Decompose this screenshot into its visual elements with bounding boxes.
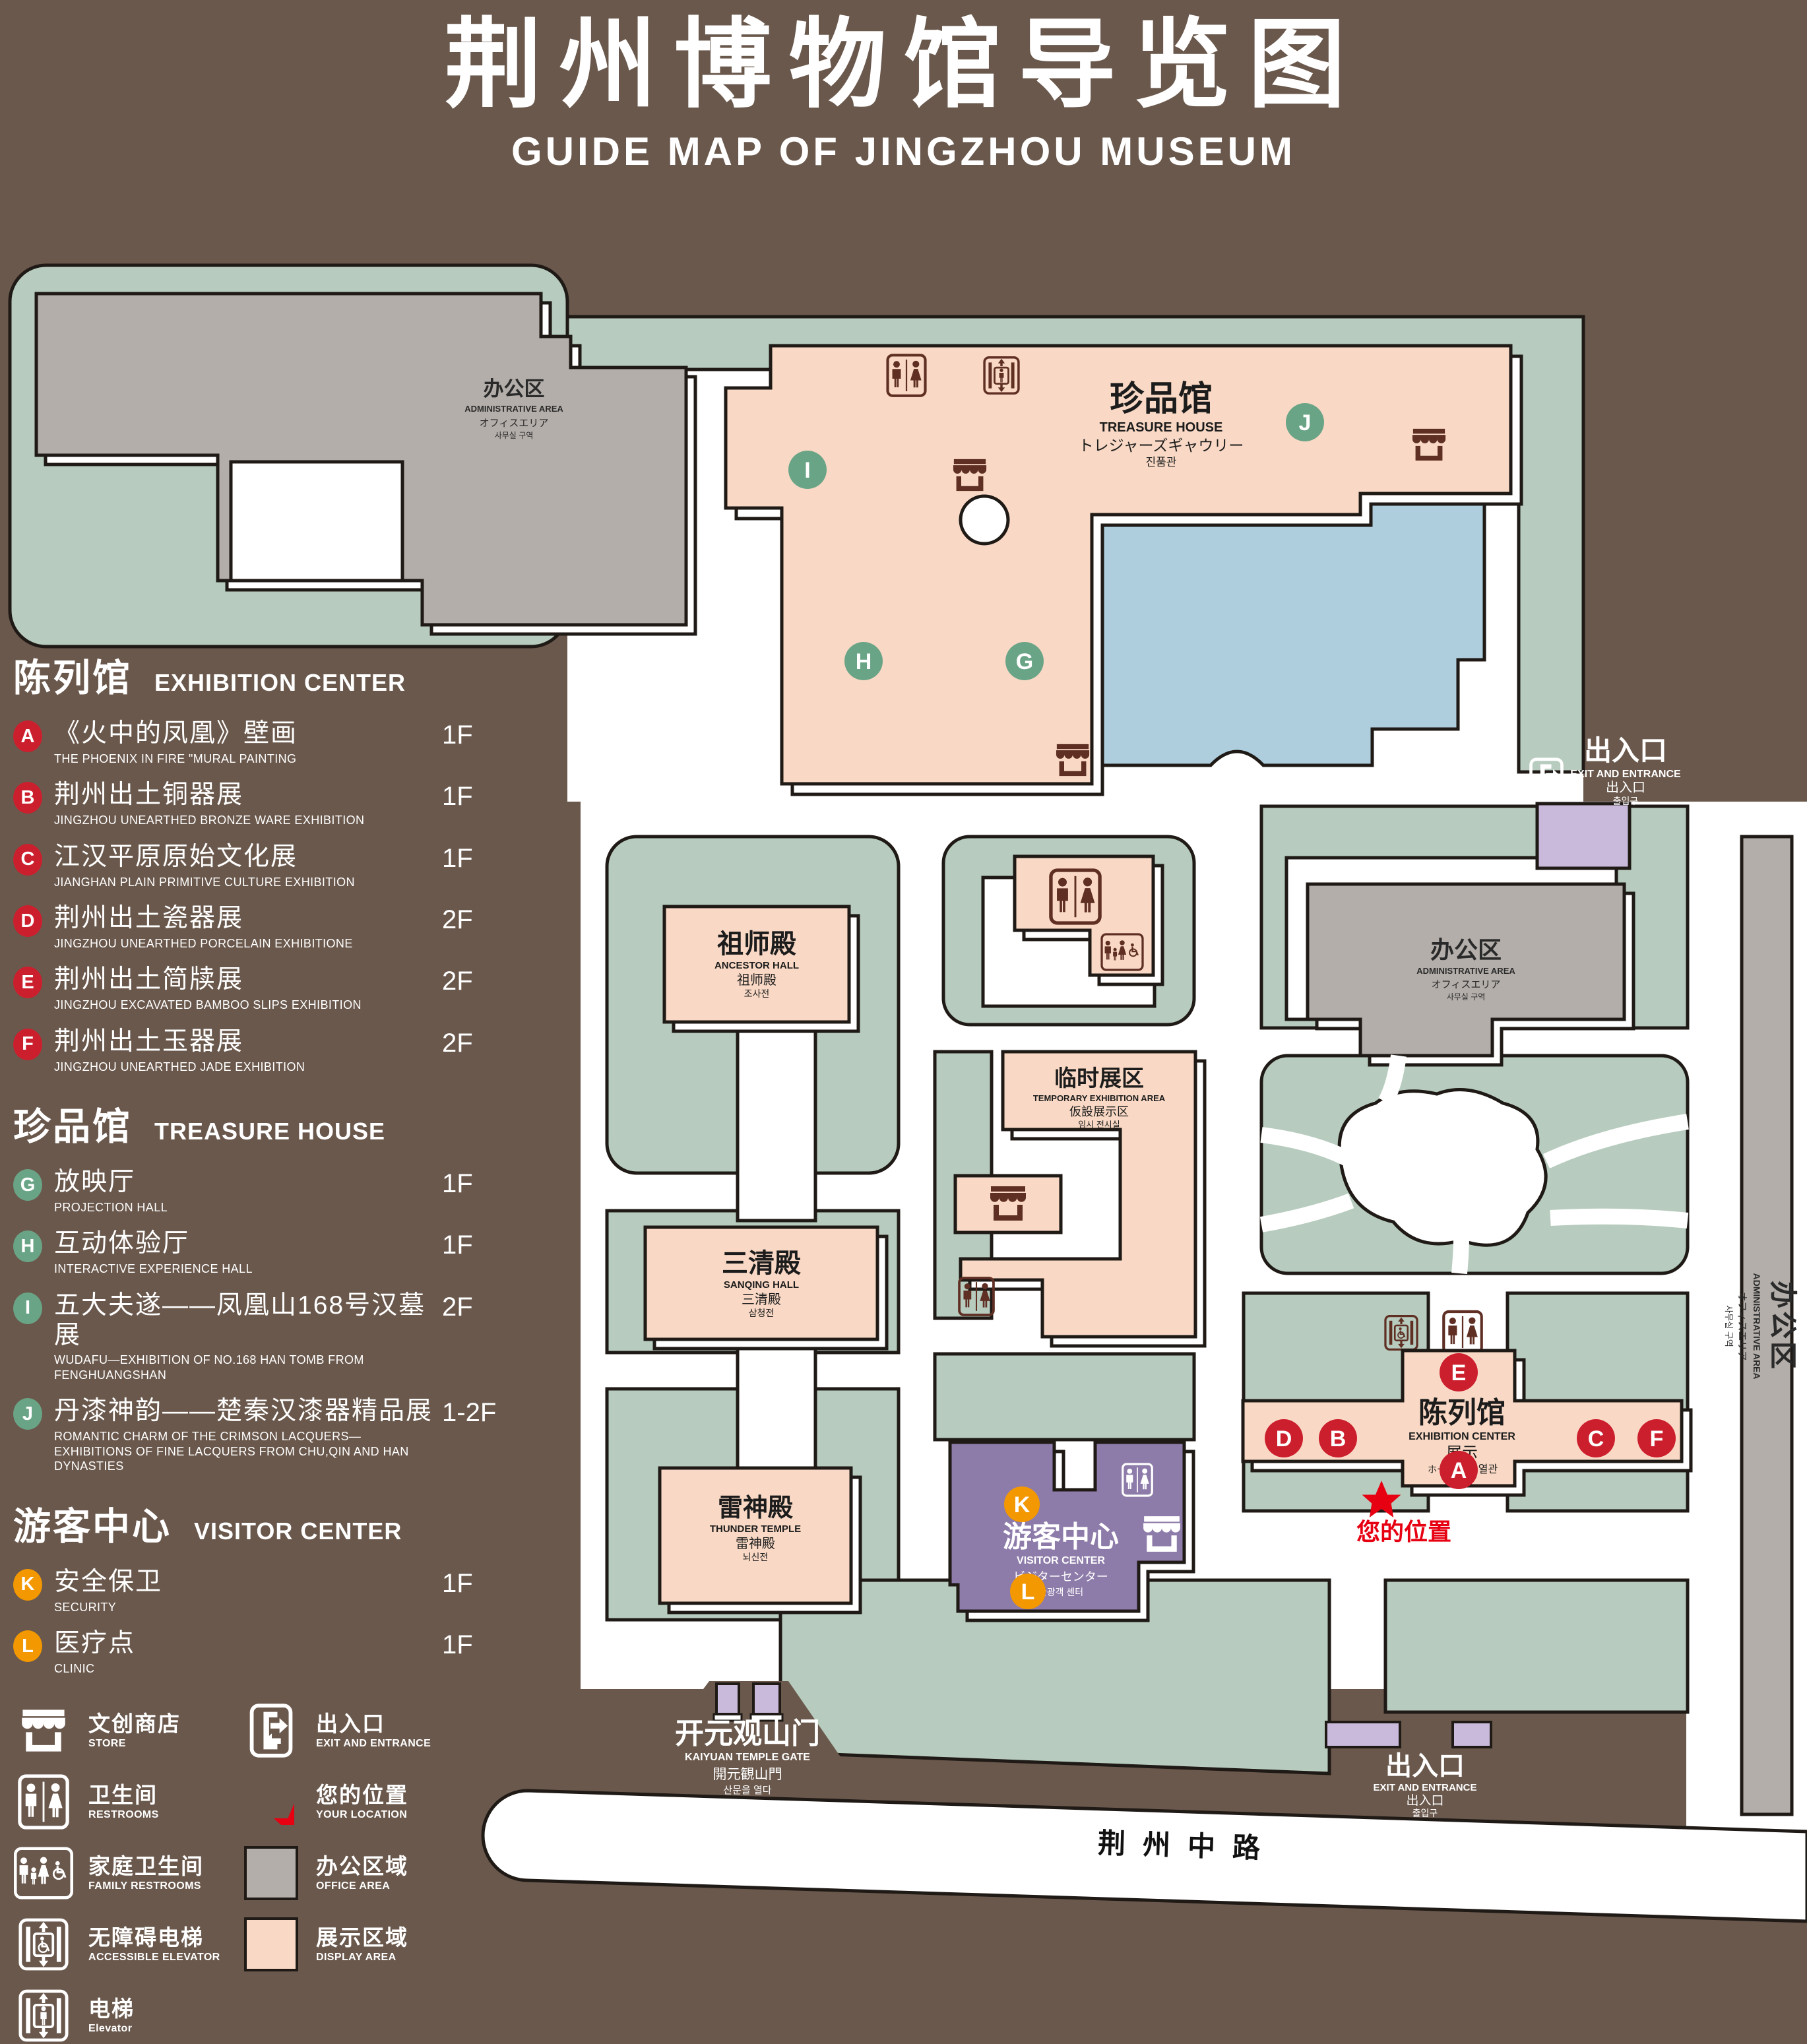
svg-text:임시 전시실: 임시 전시실 (1078, 1120, 1120, 1130)
green-court-visitor (935, 1354, 1194, 1440)
marker-badge-h: H (13, 1230, 42, 1262)
marker-f: F (1637, 1419, 1676, 1457)
marker-badge-c: C (13, 844, 42, 876)
display-area-swatch (244, 1917, 298, 1971)
legend-item-l: L 医疗点 CLINIC 1F (13, 1629, 500, 1676)
floor-label: 2F (442, 1027, 500, 1058)
svg-text:SANQING HALL: SANQING HALL (724, 1279, 799, 1291)
family-restroom-icon (13, 1847, 74, 1900)
section-title-en: EXHIBITION CENTER (154, 669, 406, 697)
svg-text:THUNDER TEMPLE: THUNDER TEMPLE (710, 1523, 801, 1535)
marker-badge-g: G (13, 1169, 42, 1201)
legend-display-area: 展示区域 DISPLAY AREA (241, 1916, 488, 1973)
svg-text:开元观山门: 开元观山门 (675, 1717, 820, 1750)
svg-text:三清殿: 三清殿 (722, 1249, 801, 1278)
gate-block (1453, 1722, 1491, 1747)
restroom-icon (13, 1774, 74, 1830)
legend-item-h: H 互动体验厅 INTERACTIVE EXPERIENCE HALL 1F (13, 1229, 500, 1276)
section-treasure-house: 珍品馆 TREASURE HOUSE (13, 1097, 500, 1151)
road-label: 荆州中路 (1097, 1828, 1277, 1865)
svg-text:祖师殿: 祖师殿 (737, 973, 777, 988)
svg-text:仮設展示区: 仮設展示区 (1069, 1105, 1129, 1118)
marker-b: B (1319, 1419, 1357, 1457)
svg-text:출입구: 출입구 (1412, 1808, 1438, 1818)
svg-text:游客中心: 游客中心 (1003, 1521, 1119, 1553)
svg-text:ANCESTOR HALL: ANCESTOR HALL (714, 960, 799, 971)
elevator-icon (13, 1989, 74, 2042)
legend-your-location: 您的位置 YOUR LOCATION (241, 1773, 488, 1830)
floor-label: 1F (442, 1568, 500, 1599)
svg-text:VISITOR CENTER: VISITOR CENTER (1017, 1555, 1105, 1566)
floor-label: 1F (442, 781, 500, 812)
svg-text:G: G (1016, 649, 1033, 674)
svg-text:办公区: 办公区 (1767, 1281, 1798, 1372)
marker-badge-d: D (13, 905, 42, 937)
svg-text:办公区: 办公区 (484, 377, 545, 400)
legend-restrooms: 卫生间 RESTROOMS (13, 1773, 241, 1830)
treasure-notch (961, 496, 1008, 544)
location-star-icon (241, 1779, 301, 1825)
svg-text:三清殿: 三清殿 (742, 1292, 781, 1307)
svg-text:출입구: 출입구 (1613, 796, 1639, 806)
section-title-en: TREASURE HOUSE (154, 1118, 385, 1145)
guide-map-poster: { "title": {"zh": "荆州博物馆导览图", "en": "GUI… (0, 0, 1807, 1932)
svg-text:I: I (804, 458, 810, 483)
svg-text:祖师殿: 祖师殿 (717, 930, 796, 959)
green-southeast (1385, 1580, 1688, 1712)
svg-text:出入口: 出入口 (1406, 1793, 1443, 1808)
legend-item-j: J 丹漆神韵——楚秦汉漆器精品展 ROMANTIC CHARM OF THE C… (13, 1397, 500, 1473)
section-exhibition-center: 陈列馆 EXHIBITION CENTER (13, 648, 500, 702)
marker-badge-f: F (13, 1029, 42, 1060)
legend-store: 文创商店 STORE (13, 1702, 241, 1759)
svg-text:オフィスエリア: オフィスエリア (480, 418, 549, 429)
svg-text:사무실 구역: 사무실 구역 (1724, 1305, 1734, 1347)
svg-text:雷神殿: 雷神殿 (736, 1536, 775, 1551)
marker-d: D (1265, 1419, 1303, 1457)
svg-text:KAIYUAN TEMPLE GATE: KAIYUAN TEMPLE GATE (685, 1752, 810, 1763)
svg-text:C: C (1588, 1426, 1604, 1452)
svg-text:雷神殿: 雷神殿 (718, 1494, 793, 1522)
accessible-elevator-icon (13, 1918, 74, 1971)
floor-label: 2F (442, 904, 500, 935)
marker-e: E (1440, 1353, 1478, 1391)
svg-text:F: F (1650, 1426, 1664, 1452)
svg-text:ADMINISTRATIVE AREA: ADMINISTRATIVE AREA (464, 404, 563, 414)
svg-text:ADMINISTRATIVE AREA: ADMINISTRATIVE AREA (1416, 966, 1515, 976)
svg-text:사무실 구역: 사무실 구역 (1447, 992, 1486, 1002)
marker-j: J (1286, 403, 1324, 441)
section-visitor-center: 游客中心 VISITOR CENTER (13, 1496, 500, 1550)
marker-l: L (1010, 1574, 1046, 1609)
svg-text:ADMINISTRATIVE AREA: ADMINISTRATIVE AREA (1752, 1273, 1762, 1380)
svg-text:出入口: 出入口 (1584, 735, 1667, 766)
page-title: 荆州博物馆导览图 (0, 12, 1807, 119)
svg-text:산문을 열다: 산문을 열다 (723, 1785, 771, 1796)
building-thunder-temple (660, 1468, 851, 1603)
poster-header: 荆州博物馆导览图 GUIDE MAP OF JINGZHOU MUSEUM (0, 12, 1807, 174)
marker-badge-a: A (13, 720, 42, 752)
svg-text:D: D (1276, 1426, 1292, 1452)
exit-icon (241, 1704, 301, 1758)
floor-label: 2F (442, 1291, 500, 1322)
svg-text:オフィスエリア: オフィスエリア (1736, 1292, 1748, 1361)
svg-text:E: E (1451, 1360, 1467, 1386)
floor-label: 1F (442, 843, 500, 874)
marker-i: I (788, 451, 827, 489)
svg-text:陈列馆: 陈列馆 (1418, 1397, 1506, 1429)
legend-item-k: K 安全保卫 SECURITY 1F (13, 1568, 500, 1614)
elevator-icon (984, 358, 1019, 394)
legend-sidebar: 陈列馆 EXHIBITION CENTER A 《火中的凤凰》壁画 THE PH… (13, 648, 500, 2044)
floor-label: 1F (442, 1229, 500, 1260)
marker-h: H (844, 642, 883, 680)
svg-text:L: L (1021, 1580, 1035, 1605)
section-title-zh: 陈列馆 (13, 648, 132, 702)
label-exit-top: 出入口 EXIT AND ENTRANCE 出入口 출입구 (1570, 735, 1681, 806)
legend-item-i: I 五大夫遂——凤凰山168号汉墓展 WUDAFU—EXHIBITION OF … (13, 1291, 500, 1383)
svg-text:办公区: 办公区 (1430, 936, 1502, 963)
svg-text:開元観山門: 開元観山門 (713, 1767, 782, 1782)
gate-block (1326, 1722, 1400, 1747)
legend-office-area: 办公区域 OFFICE AREA (241, 1845, 488, 1901)
store-icon (13, 1708, 74, 1753)
marker-badge-k: K (13, 1569, 42, 1601)
svg-text:TEMPORARY EXHIBITION AREA: TEMPORARY EXHIBITION AREA (1033, 1093, 1166, 1103)
marker-badge-e: E (13, 967, 42, 998)
section-title-en: VISITOR CENTER (194, 1517, 402, 1545)
svg-text:EXIT AND ENTRANCE: EXIT AND ENTRANCE (1374, 1782, 1477, 1793)
floor-label: 1F (442, 1629, 500, 1660)
legend-item-b: B 荆州出土铜器展 JINGZHOU UNEARTHED BRONZE WARE… (13, 781, 500, 827)
store-kiosk (955, 1176, 1061, 1232)
marker-c: C (1577, 1419, 1615, 1457)
your-location-label: 您的位置 (1356, 1518, 1451, 1545)
marker-g: G (1005, 642, 1044, 680)
marker-badge-i: I (13, 1293, 42, 1324)
office-area-swatch (244, 1846, 298, 1900)
walkway (738, 1333, 815, 1475)
section-title-zh: 珍品馆 (13, 1097, 132, 1151)
legend-exit: 出入口 EXIT AND ENTRANCE (241, 1702, 488, 1759)
marker-a: A (1440, 1451, 1478, 1489)
svg-text:삼청전: 삼청전 (749, 1308, 775, 1318)
legend-accessible-elevator: 无障碍电梯 ACCESSIBLE ELEVATOR (13, 1916, 241, 1973)
admin-inner-court (231, 462, 402, 581)
floor-label: 1F (442, 1168, 500, 1199)
marker-k: K (1004, 1486, 1040, 1522)
svg-text:J: J (1299, 410, 1312, 435)
svg-text:珍品馆: 珍品馆 (1110, 380, 1213, 418)
legend-item-e: E 荆州出土简牍展 JINGZHOU EXCAVATED BAMBOO SLIP… (13, 965, 500, 1012)
page-subtitle: GUIDE MAP OF JINGZHOU MUSEUM (0, 129, 1807, 174)
section-title-zh: 游客中心 (13, 1496, 172, 1550)
marker-badge-b: B (13, 782, 42, 814)
floor-label: 1F (442, 719, 500, 750)
marker-badge-l: L (13, 1630, 42, 1662)
floor-label: 1-2F (442, 1397, 500, 1428)
walkway (738, 1016, 815, 1221)
svg-text:临时展区: 临时展区 (1054, 1066, 1144, 1091)
svg-text:A: A (1451, 1458, 1467, 1483)
svg-text:K: K (1014, 1492, 1030, 1517)
legend-item-d: D 荆州出土瓷器展 JINGZHOU UNEARTHED PORCELAIN E… (13, 904, 500, 951)
legend-item-c: C 江汉平原原始文化展 JIANGHAN PLAIN PRIMITIVE CUL… (13, 843, 500, 889)
svg-text:EXIT AND ENTRANCE: EXIT AND ENTRANCE (1570, 769, 1681, 780)
legend-icon-grid: 文创商店 STORE 出入口 EXIT AND ENTRANCE 卫生间 RES… (13, 1702, 500, 2044)
svg-text:H: H (856, 649, 872, 674)
svg-text:出入口: 出入口 (1606, 780, 1645, 795)
marker-badge-j: J (13, 1398, 42, 1430)
floor-label: 2F (442, 965, 500, 996)
legend-item-f: F 荆州出土玉器展 JINGZHOU UNEARTHED JADE EXHIBI… (13, 1027, 500, 1074)
legend-item-g: G 放映厅 PROJECTION HALL 1F (13, 1168, 500, 1215)
svg-text:사무실 구역: 사무실 구역 (495, 431, 534, 440)
svg-text:出入口: 出入口 (1385, 1752, 1465, 1781)
legend-item-a: A 《火中的凤凰》壁画 THE PHOENIX IN FIRE "MURAL P… (13, 719, 500, 766)
svg-text:TREASURE HOUSE: TREASURE HOUSE (1100, 420, 1223, 435)
label-exit-bottom: 出入口 EXIT AND ENTRANCE 出入口 출입구 (1374, 1752, 1477, 1818)
svg-text:EXHIBITION CENTER: EXHIBITION CENTER (1409, 1431, 1515, 1442)
svg-text:뇌신전: 뇌신전 (743, 1552, 769, 1562)
gate-block (1537, 804, 1630, 868)
legend-family-restrooms: 家庭卫生间 FAMILY RESTROOMS (13, 1845, 241, 1901)
legend-elevator: 电梯 Elevator (13, 1987, 241, 2044)
svg-text:トレジャーズギャウリー: トレジャーズギャウリー (1079, 437, 1244, 454)
svg-text:B: B (1330, 1426, 1347, 1452)
svg-text:진품관: 진품관 (1146, 456, 1177, 468)
svg-text:オフィスエリア: オフィスエリア (1432, 979, 1501, 990)
svg-text:조사전: 조사전 (744, 988, 770, 999)
